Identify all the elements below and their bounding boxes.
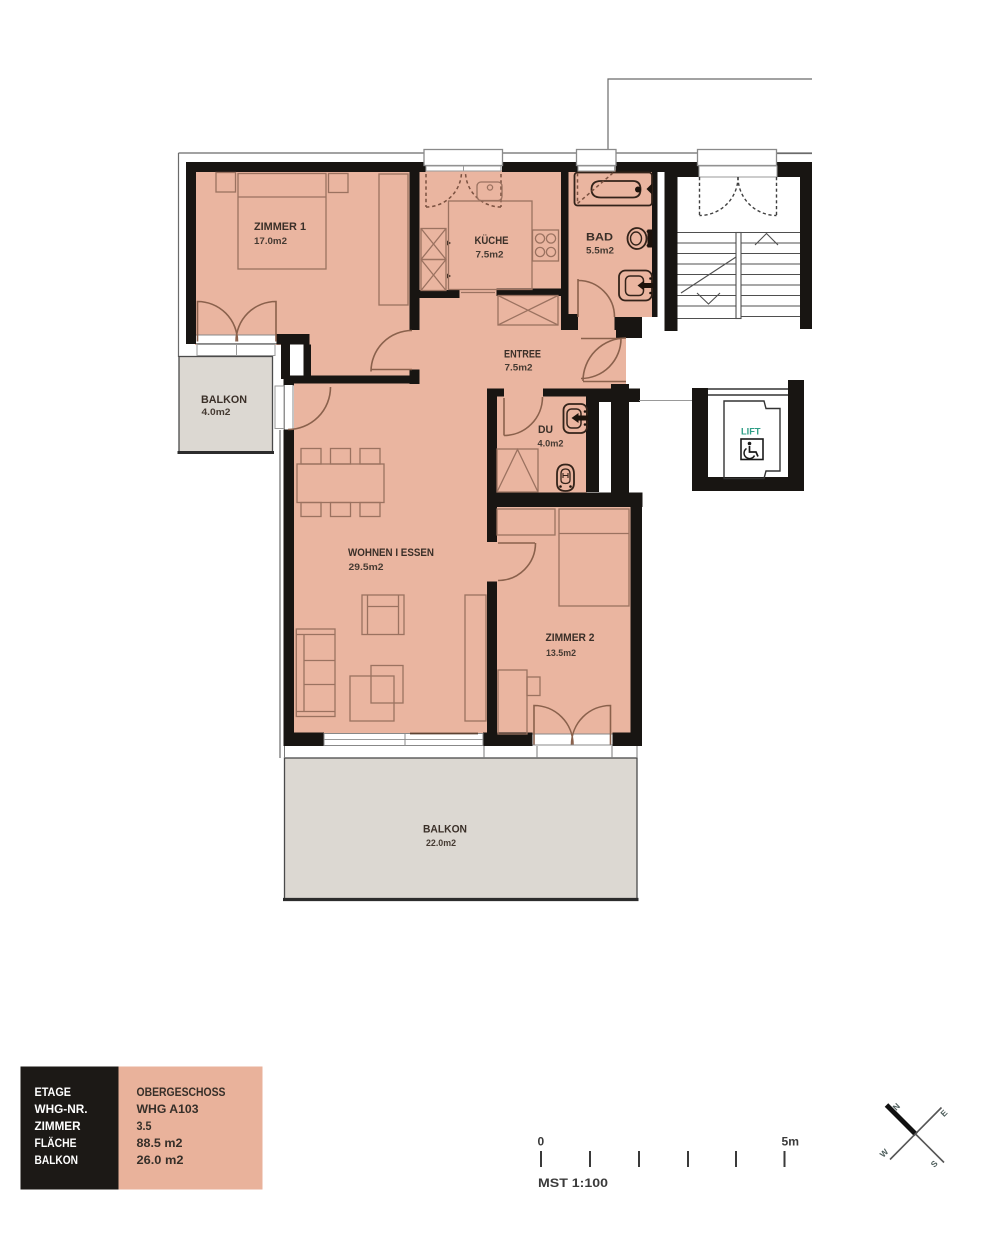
svg-text:22.0m2: 22.0m2 [426, 838, 456, 848]
svg-text:3.5: 3.5 [137, 1119, 152, 1133]
svg-text:LIFT: LIFT [741, 427, 761, 438]
svg-text:MST 1:100: MST 1:100 [538, 1176, 608, 1190]
svg-text:OBERGESCHOSS: OBERGESCHOSS [137, 1085, 226, 1099]
svg-text:0: 0 [538, 1135, 545, 1149]
svg-text:4.0m2: 4.0m2 [538, 439, 564, 449]
svg-text:BAD: BAD [586, 232, 613, 244]
svg-text:26.0 m2: 26.0 m2 [137, 1153, 184, 1167]
svg-text:88.5 m2: 88.5 m2 [137, 1136, 183, 1150]
svg-text:BALKON: BALKON [423, 824, 467, 836]
svg-text:BALKON: BALKON [35, 1153, 79, 1167]
svg-text:5.5m2: 5.5m2 [586, 246, 614, 256]
svg-text:ZIMMER: ZIMMER [35, 1119, 81, 1133]
svg-text:ZIMMER 1: ZIMMER 1 [254, 221, 306, 233]
svg-text:FLÄCHE: FLÄCHE [35, 1135, 77, 1150]
svg-text:17.0m2: 17.0m2 [254, 236, 287, 246]
svg-text:WHG-NR.: WHG-NR. [35, 1102, 88, 1116]
svg-text:13.5m2: 13.5m2 [546, 648, 576, 658]
svg-text:7.5m2: 7.5m2 [505, 363, 533, 373]
svg-text:WOHNEN I ESSEN: WOHNEN I ESSEN [348, 547, 434, 559]
svg-text:KÜCHE: KÜCHE [475, 234, 509, 247]
svg-text:4.0m2: 4.0m2 [202, 407, 231, 417]
svg-text:DU: DU [538, 424, 553, 436]
svg-text:7.5m2: 7.5m2 [476, 250, 504, 260]
svg-text:BALKON: BALKON [201, 394, 247, 406]
svg-text:ZIMMER 2: ZIMMER 2 [546, 632, 595, 644]
svg-text:WHG A103: WHG A103 [137, 1102, 199, 1116]
svg-text:ETAGE: ETAGE [35, 1085, 72, 1099]
svg-text:5m: 5m [782, 1135, 800, 1149]
svg-text:ENTREE: ENTREE [504, 349, 541, 361]
svg-text:29.5m2: 29.5m2 [349, 562, 384, 572]
